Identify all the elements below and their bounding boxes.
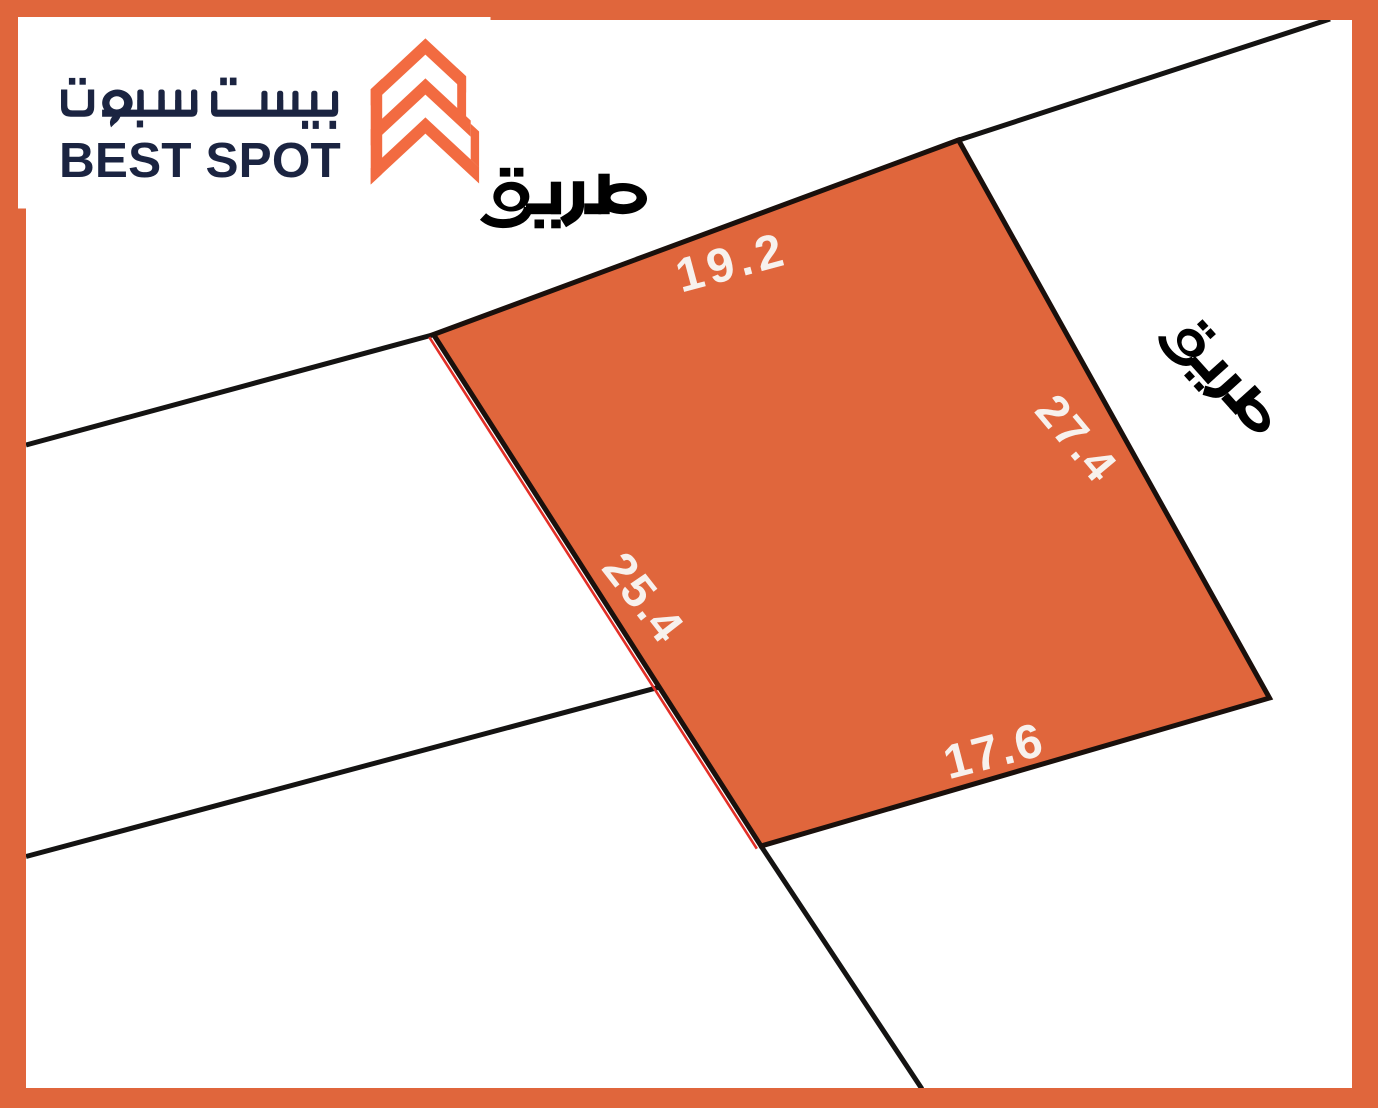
svg-text:BEST SPOT: BEST SPOT xyxy=(59,133,341,188)
